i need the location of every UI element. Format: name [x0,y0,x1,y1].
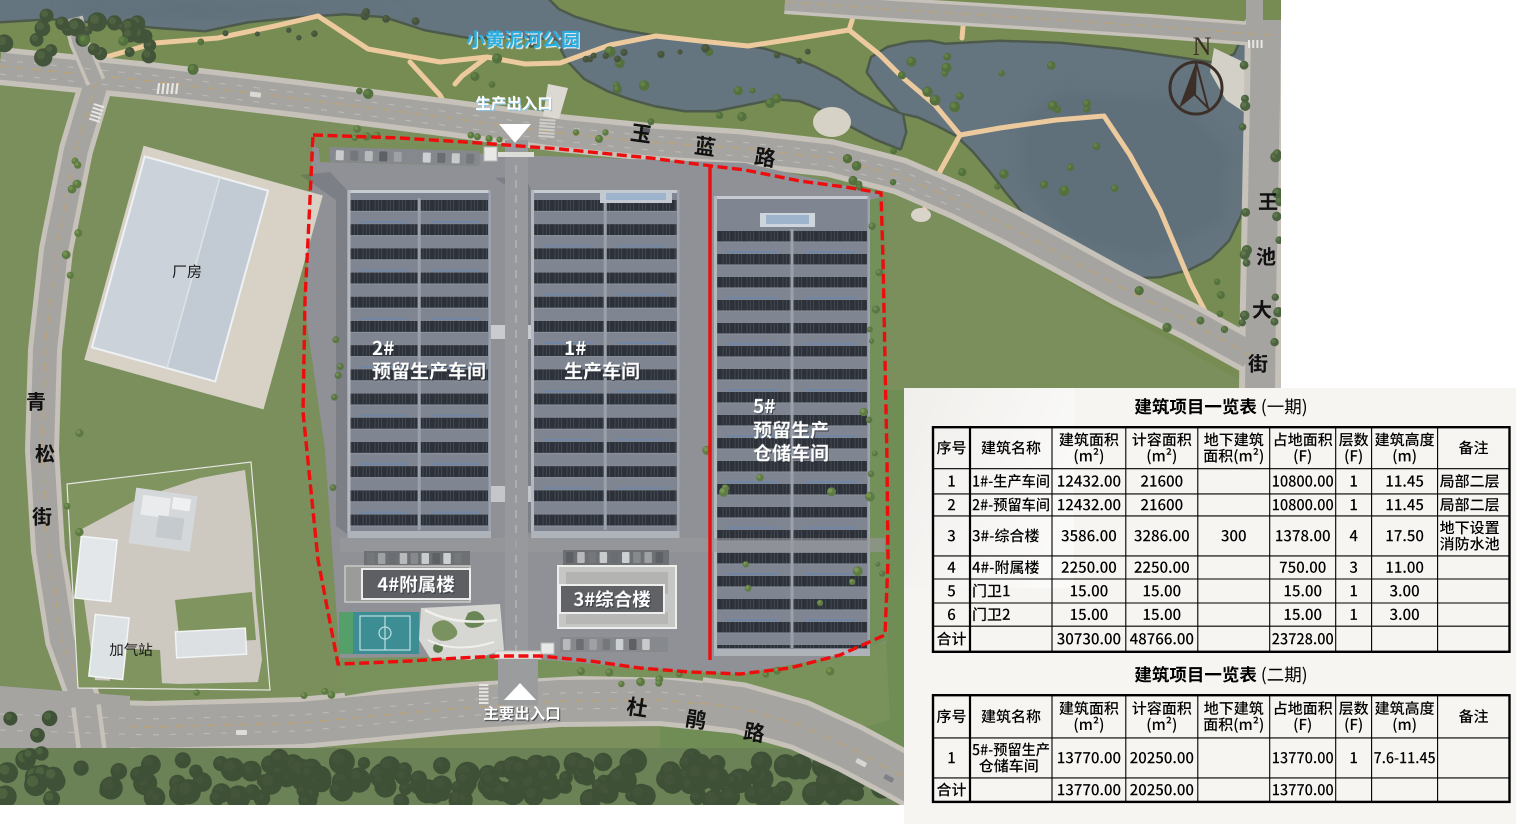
svg-text:N: N [1193,32,1212,61]
